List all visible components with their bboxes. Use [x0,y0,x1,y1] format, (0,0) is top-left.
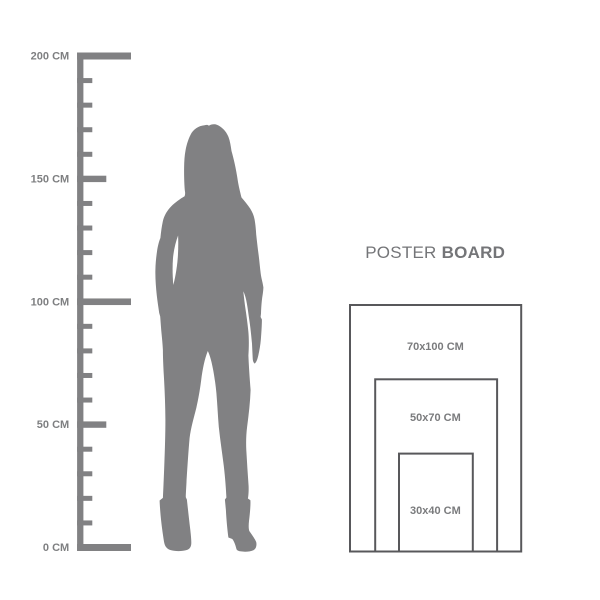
svg-text:50x70 CM: 50x70 CM [410,412,461,424]
svg-text:0 CM: 0 CM [43,542,69,554]
svg-text:50 CM: 50 CM [37,419,69,431]
svg-text:30x40 CM: 30x40 CM [410,505,461,517]
svg-text:POSTER BOARD: POSTER BOARD [365,243,505,262]
svg-text:100 CM: 100 CM [31,296,70,308]
svg-text:70x100 CM: 70x100 CM [407,341,464,353]
svg-text:150 CM: 150 CM [31,174,70,186]
svg-text:200 CM: 200 CM [31,51,70,63]
